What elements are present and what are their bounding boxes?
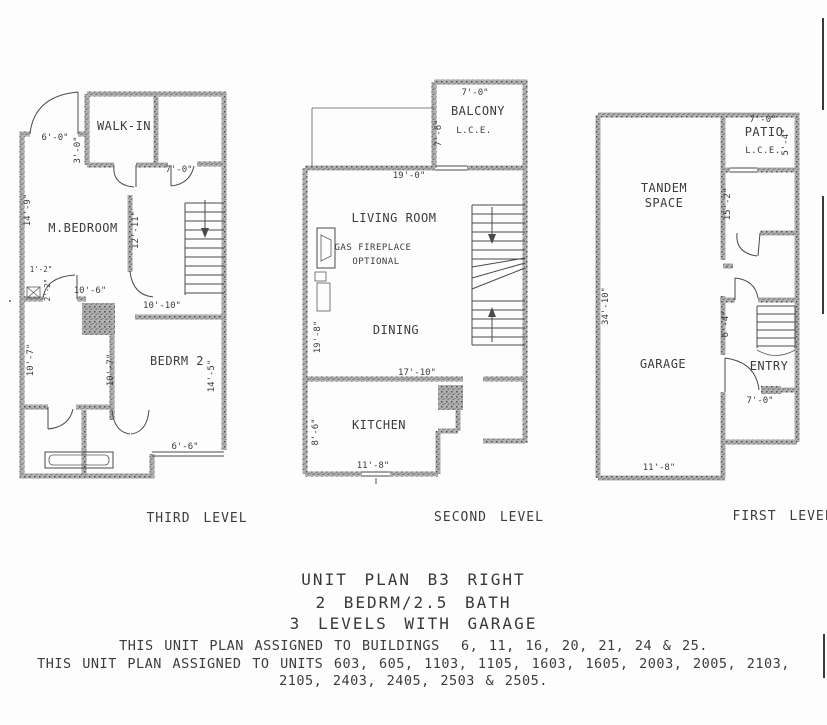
assigned-buildings-line: THIS UNIT PLAN ASSIGNED TO BUILDINGS 6, … [0, 638, 827, 654]
stairs-third-level [185, 200, 224, 295]
label-gas-fireplace: GAS FIREPLACE [335, 243, 412, 253]
dim-tandem-right: 15'-2" [723, 188, 733, 221]
room-label-dining: DINING [373, 323, 419, 337]
patio-window [730, 168, 757, 172]
stair-up-arrow-icon [488, 307, 496, 317]
gas-fireplace [315, 228, 335, 311]
chase-box [27, 287, 40, 298]
dim-hall-bottom: 10'-10" [143, 301, 181, 311]
dim-balcony-top: 7'-0" [461, 88, 488, 98]
dim-dining-bottom: 17'-10" [398, 368, 436, 378]
labels-third-level: WALK-IN M.BEDROOM BEDRM 2 6'-0" 3'-0" 7'… [23, 119, 217, 452]
kitchen-window [362, 472, 390, 484]
dim-left-side: 34'-10" [601, 287, 611, 325]
dim-patio-right: 5'-4" [781, 128, 791, 155]
room-label-walkin: WALK-IN [97, 119, 151, 133]
dim-balcony-left: 7'-6" [434, 119, 444, 146]
room-label-mbedroom: M.BEDROOM [48, 221, 118, 235]
dim-bedroom-right: 12'-11" [131, 211, 141, 249]
room-label-tandem-line2: SPACE [645, 196, 684, 210]
plumbing-wall-hatch [82, 303, 115, 335]
floor-plan-third-level: WALK-IN M.BEDROOM BEDRM 2 6'-0" 3'-0" 7'… [8, 80, 238, 500]
dim-chase-width: 1'-2" [30, 265, 53, 274]
scan-dot-artifact [9, 300, 11, 302]
dim-hall-top: 7'-0" [165, 165, 192, 175]
stair-down-arrow-icon [201, 228, 209, 238]
caption-second-level: SECOND LEVEL [434, 510, 544, 525]
stairs-first-level [757, 306, 795, 356]
scanned-floor-plan-page: WALK-IN M.BEDROOM BEDRM 2 6'-0" 3'-0" 7'… [0, 0, 827, 725]
bathtub [45, 452, 113, 468]
dim-kitchen-bottom: 11'-8" [357, 461, 390, 471]
roof-outline-below [312, 108, 434, 168]
labels-second-level: 7'-0" BALCONY L.C.E. 7'-6" 19'-0" LIVING… [311, 88, 505, 471]
dim-mid-right: 6'-4" [721, 310, 731, 337]
room-label-tandem-line1: TANDEM [641, 181, 687, 195]
plan-title-line1: UNIT PLAN B3 RIGHT [0, 570, 827, 589]
plan-title-line3: 3 LEVELS WITH GARAGE [0, 614, 827, 633]
dim-bedroom-bottom: 10'-6" [74, 286, 107, 296]
caption-third-level: THIRD LEVEL [146, 511, 247, 526]
dim-bedrm2-right: 14'-5" [207, 360, 217, 393]
label-fireplace-optional: OPTIONAL [352, 257, 399, 267]
assigned-units-line2: 2105, 2403, 2405, 2503 & 2505. [0, 673, 827, 689]
stairs-second-level [472, 205, 525, 345]
window-bedrm2 [152, 452, 224, 456]
dim-patio-top: 7'-0" [749, 115, 776, 125]
room-label-patio: PATIO [745, 125, 784, 139]
room-label-kitchen: KITCHEN [352, 418, 406, 432]
room-label-patio-lce: L.C.E. [745, 146, 781, 156]
room-label-living: LIVING ROOM [352, 211, 437, 225]
walls-second-level [305, 82, 525, 474]
caption-first-level: FIRST LEVEL [732, 509, 827, 524]
dim-kitchen-left: 8'-6" [311, 418, 321, 445]
dim-entry-door: 7'-0" [746, 396, 773, 406]
dim-entry-door: 6'-0" [41, 133, 68, 143]
assigned-units-line1: THIS UNIT PLAN ASSIGNED TO UNITS 603, 60… [0, 656, 827, 672]
plan-title-line2: 2 BEDRM/2.5 BATH [0, 593, 827, 612]
stair-down-arrow-icon [488, 234, 496, 244]
walls-first-level [598, 115, 797, 478]
dim-living-top: 19'-0" [393, 171, 426, 181]
scan-edge-artifact [823, 634, 825, 678]
room-label-balcony-lce: L.C.E. [456, 126, 492, 136]
dim-window: 6'-6" [171, 442, 198, 452]
room-label-balcony: BALCONY [451, 104, 505, 118]
dim-left-side: 19'-8" [313, 321, 323, 354]
room-label-bedrm2: BEDRM 2 [150, 354, 204, 368]
dim-bath-mid: 10'-7" [106, 354, 116, 387]
pantry-wall-hatch [438, 385, 463, 410]
floor-plan-second-level: 7'-0" BALCONY L.C.E. 7'-6" 19'-0" LIVING… [295, 75, 535, 495]
floor-plan-first-level: 7'-0" PATIO L.C.E. 5'-4" TANDEM SPACE 15… [585, 100, 827, 490]
scan-edge-artifact [822, 196, 824, 314]
dim-bedroom-left: 14'-9" [23, 194, 33, 227]
entry-threshold-hatch [761, 386, 781, 394]
room-label-entry: ENTRY [750, 359, 789, 373]
dim-bath-left: 10'-7" [26, 344, 36, 377]
balcony-slider-door [435, 166, 467, 170]
room-label-garage: GARAGE [640, 357, 686, 371]
walls-third-level [22, 94, 224, 476]
dim-closet-side: 3'-0" [73, 136, 83, 163]
scan-edge-artifact [822, 18, 824, 110]
dim-chase-height: 2'-2" [43, 279, 52, 302]
dim-garage-bottom: 11'-8" [643, 463, 676, 473]
